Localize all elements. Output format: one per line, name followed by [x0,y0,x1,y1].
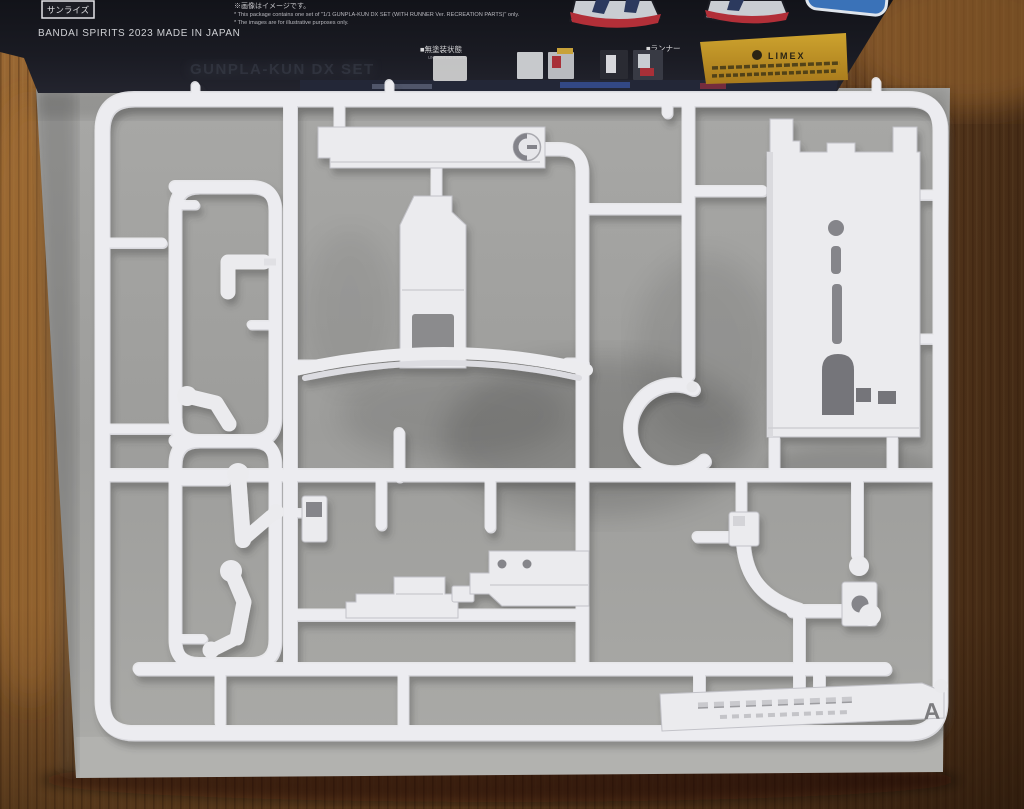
knee-curve-part [729,512,759,546]
gate-circle-mark [514,134,541,161]
box-art-figure-leg [705,0,789,23]
image-disclaimer-en-2: * The images are for illustrative purpos… [234,20,349,26]
product-thumbnail [433,56,467,81]
runner-letter-a: A [923,698,941,725]
limex-logo-icon [752,50,762,60]
ghost-product-title-sharp: GUNPLA-KUN DX SET [190,61,375,78]
kit-box-back-panel: サンライズ BANDAI SPIRITS 2023 MADE IN JAPAN … [0,0,893,93]
image-disclaimer-jp: ※画像はイメージです。 [234,1,310,10]
l-pipe-part [302,496,327,542]
bandai-copyright-text: BANDAI SPIRITS 2023 MADE IN JAPAN [38,28,240,39]
backpack-arch-hole [822,354,854,415]
box-art-figure-leg [570,0,661,28]
unpainted-state-label: ■無塗装状態 [420,44,463,54]
limex-logo-text: LIMEX [768,51,806,61]
sunrise-logo: サンライズ [47,5,90,15]
c-ring-part [687,382,698,393]
torso-part [400,196,466,368]
scene: サンライズ BANDAI SPIRITS 2023 MADE IN JAPAN … [0,0,1024,809]
limex-material-label: LIMEX [700,33,848,84]
top-beam-part [318,127,545,168]
backpack-plate-part [767,119,920,437]
image-disclaimer-en-1: * This package contains one set of "1/1 … [234,12,520,18]
product-thumbnail [517,52,543,79]
photo-of-gunpla-runner-on-box: サンライズ BANDAI SPIRITS 2023 MADE IN JAPAN … [0,0,1024,809]
